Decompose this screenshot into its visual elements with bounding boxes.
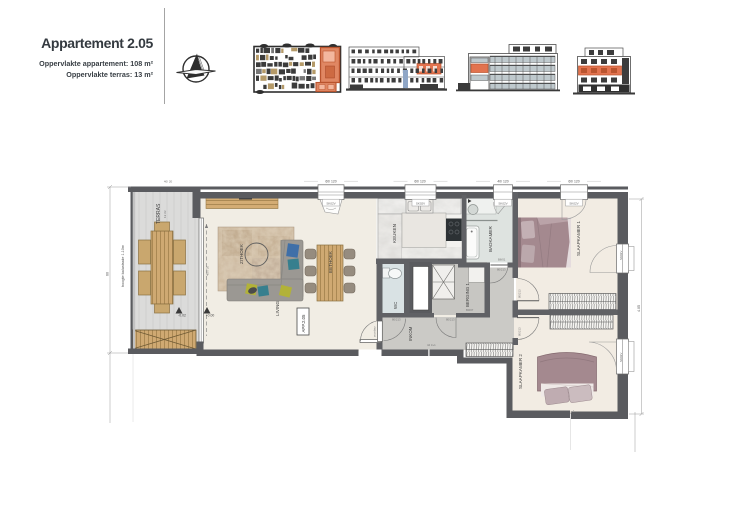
svg-text:ZITHOEK: ZITHOEK (239, 243, 244, 264)
svg-text:SLAAPKAMER 2: SLAAPKAMER 2 (518, 354, 523, 389)
svg-text:WC: WC (393, 302, 398, 309)
svg-text:13 m²: 13 m² (163, 210, 167, 218)
svg-text:SK02V: SK02V (416, 201, 425, 205)
svg-text:60/ 120: 60/ 120 (414, 180, 425, 184)
svg-text:Oppervlakte appartement: 108 m: Oppervlakte appartement: 108 m² (39, 59, 153, 68)
svg-text:SK02V: SK02V (619, 353, 623, 362)
svg-text:BERGING 1: BERGING 1 (465, 283, 470, 307)
svg-text:TERRAS: TERRAS (156, 203, 162, 224)
svg-text:80/213: 80/213 (446, 317, 455, 321)
svg-text:400 / 20: 400 / 20 (206, 265, 210, 276)
svg-text:KEUKEN: KEUKEN (392, 224, 397, 243)
svg-text:Appartement 2.05: Appartement 2.05 (41, 35, 153, 51)
svg-text:80/213: 80/213 (518, 327, 522, 336)
svg-text:INKOM: INKOM (408, 326, 413, 341)
svg-text:voordeur: voordeur (373, 326, 377, 337)
svg-text:-0.02: -0.02 (178, 314, 186, 318)
svg-text:Oppervlakte terras: 13 m²: Oppervlakte terras: 13 m² (66, 70, 153, 79)
svg-text:SK02V: SK02V (326, 201, 335, 205)
svg-text:44 3+1: 44 3+1 (427, 343, 436, 347)
svg-text:hoogte balustrade 1.10m: hoogte balustrade 1.10m (121, 245, 125, 287)
svg-text:EETHOEK: EETHOEK (328, 250, 333, 273)
svg-text:4.05: 4.05 (637, 305, 641, 312)
svg-text:SK02V: SK02V (619, 251, 623, 260)
svg-text:80/213: 80/213 (518, 289, 522, 298)
svg-text:60/ 120: 60/ 120 (325, 180, 336, 184)
svg-text:60/ 120: 60/ 120 (568, 180, 579, 184)
svg-text:SK02V: SK02V (569, 201, 578, 205)
svg-text:40/ 20: 40/ 20 (164, 180, 173, 184)
svg-text:80/213: 80/213 (497, 268, 506, 272)
svg-text:B0/07: B0/07 (466, 308, 474, 312)
svg-text:APP.2.05: APP.2.05 (301, 314, 306, 333)
svg-text:80/213: 80/213 (392, 317, 401, 321)
svg-text:LIVING: LIVING (275, 301, 280, 316)
svg-text:SLAAPKAMER 1: SLAAPKAMER 1 (576, 221, 581, 256)
svg-text:60: 60 (106, 272, 110, 276)
svg-text:B6/01: B6/01 (498, 258, 506, 262)
svg-text:40/ 120: 40/ 120 (497, 180, 508, 184)
svg-text:+0.00: +0.00 (206, 314, 215, 318)
svg-text:BADKAMER: BADKAMER (488, 226, 493, 252)
svg-text:SK02V: SK02V (498, 201, 507, 205)
